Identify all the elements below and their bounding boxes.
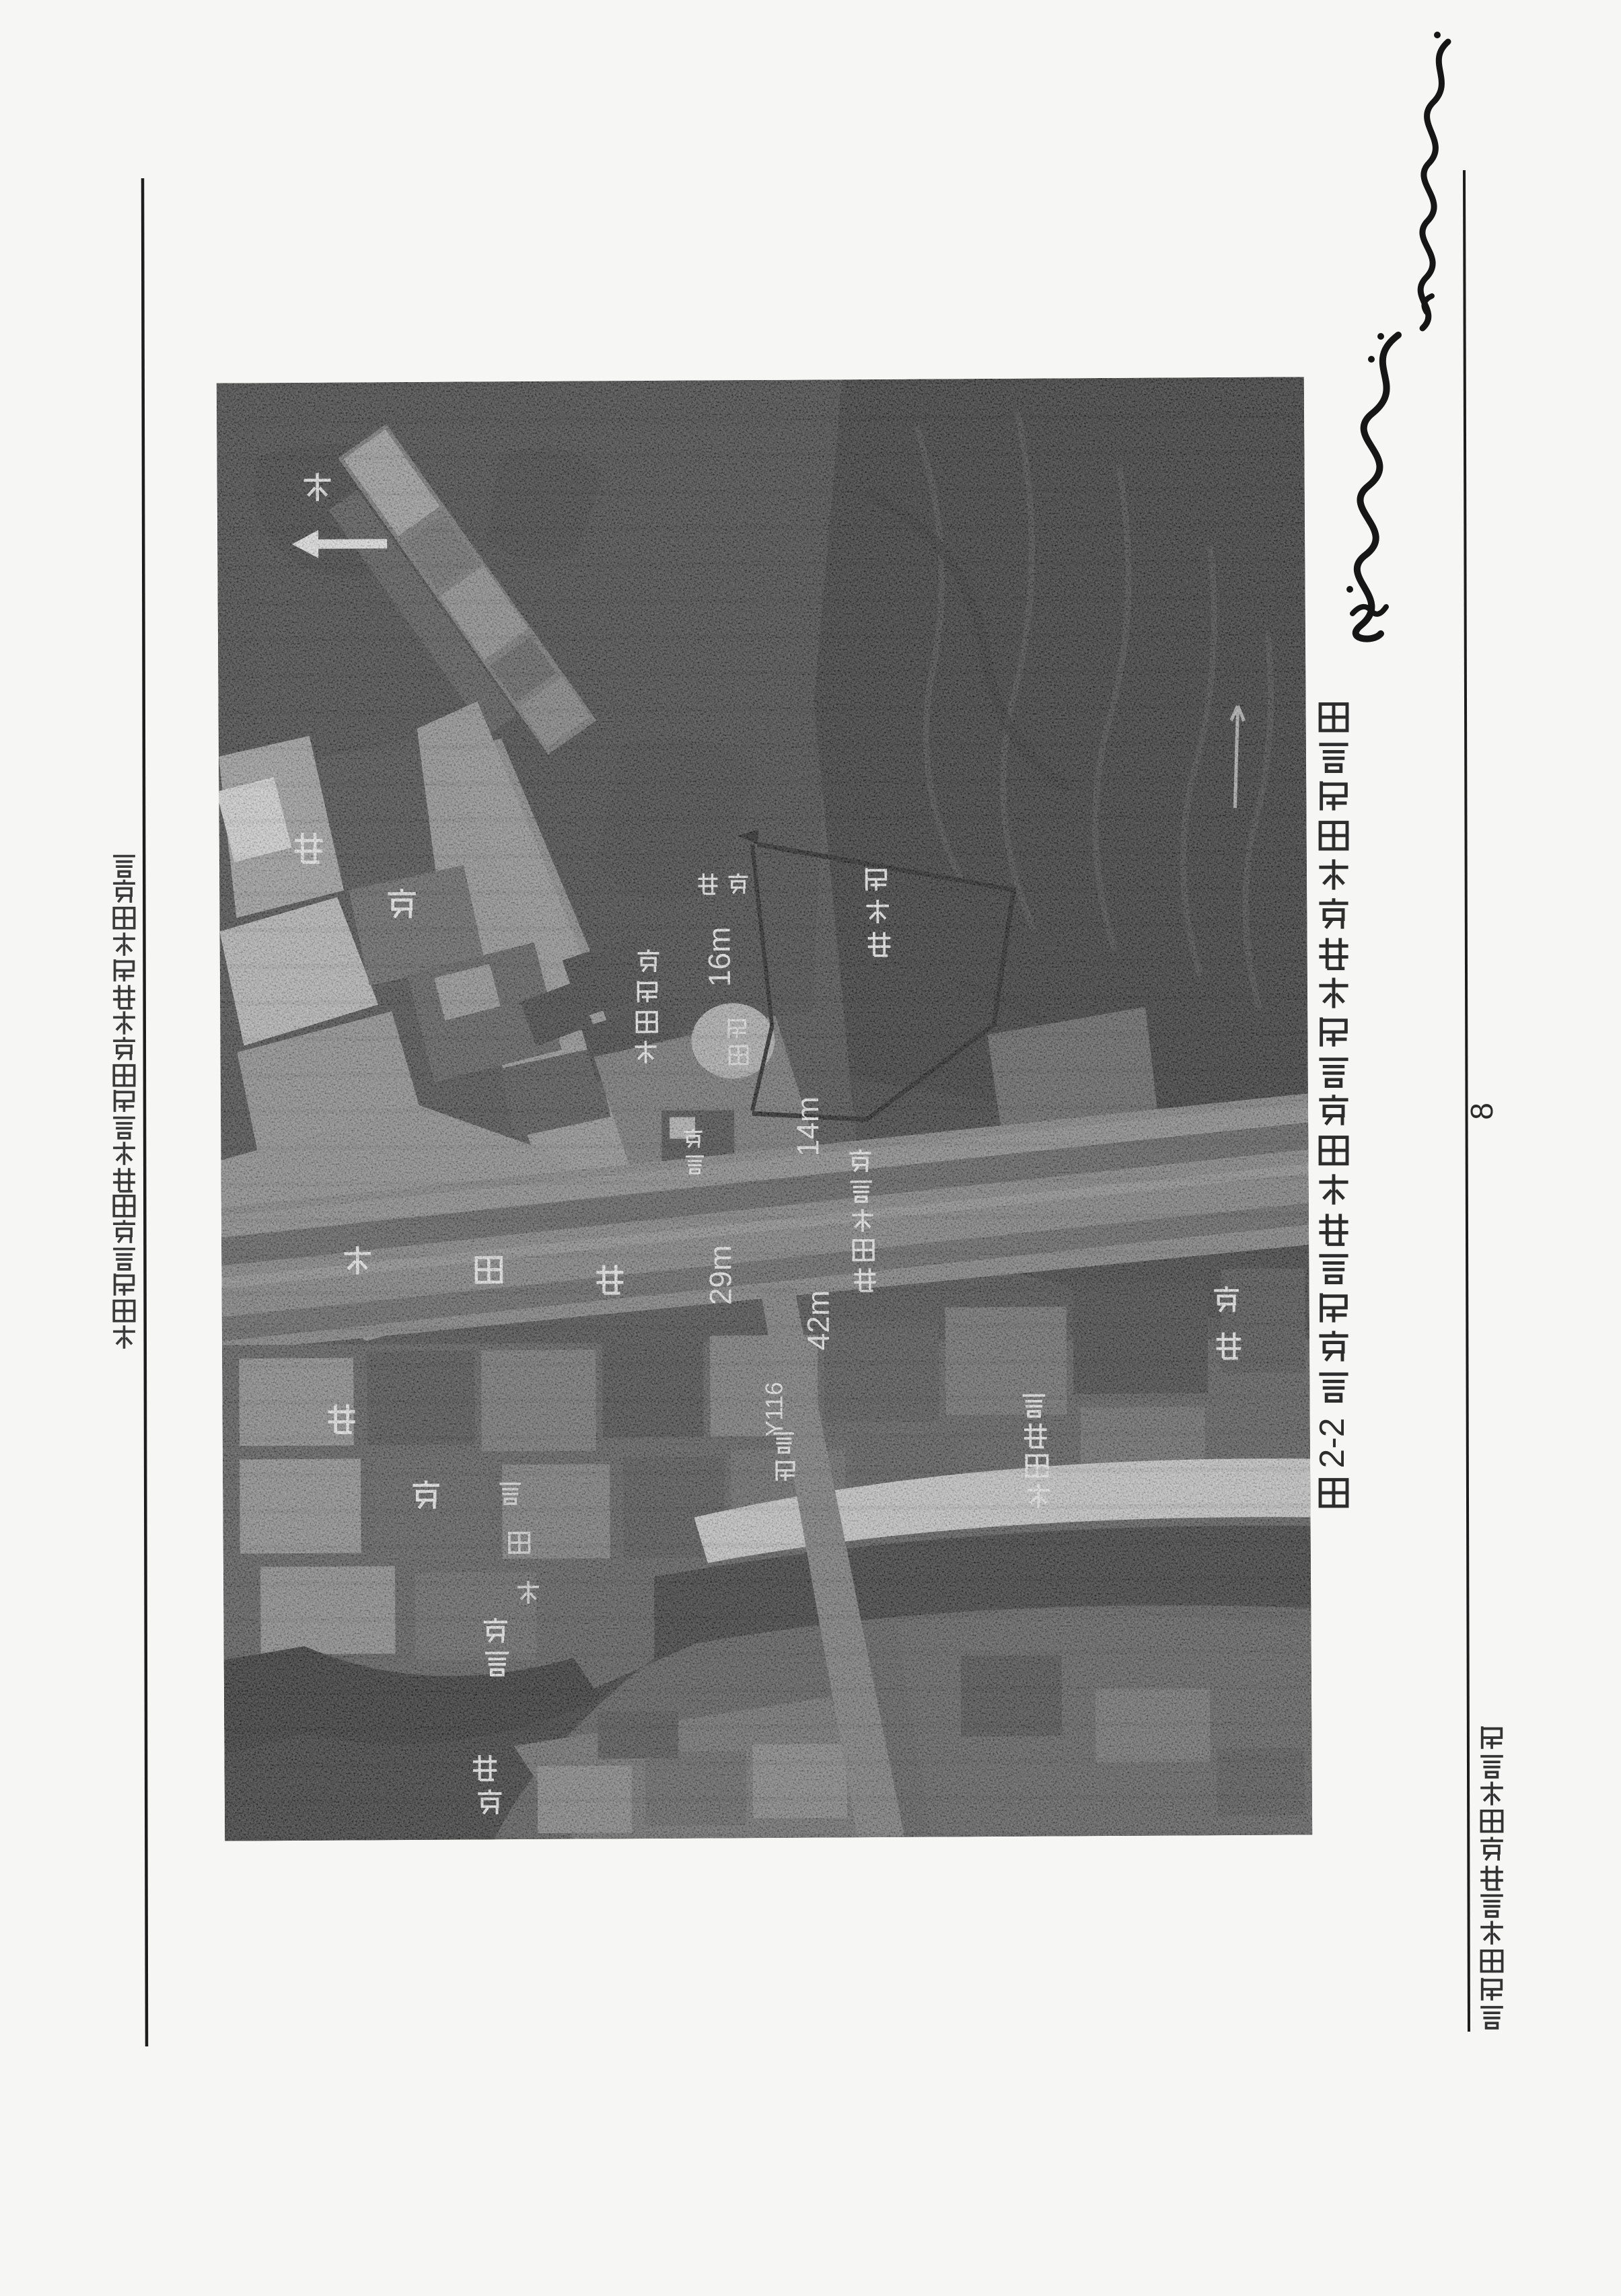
svg-text:8: 8	[1464, 1103, 1499, 1120]
svg-text:2-2: 2-2	[1313, 1417, 1352, 1468]
